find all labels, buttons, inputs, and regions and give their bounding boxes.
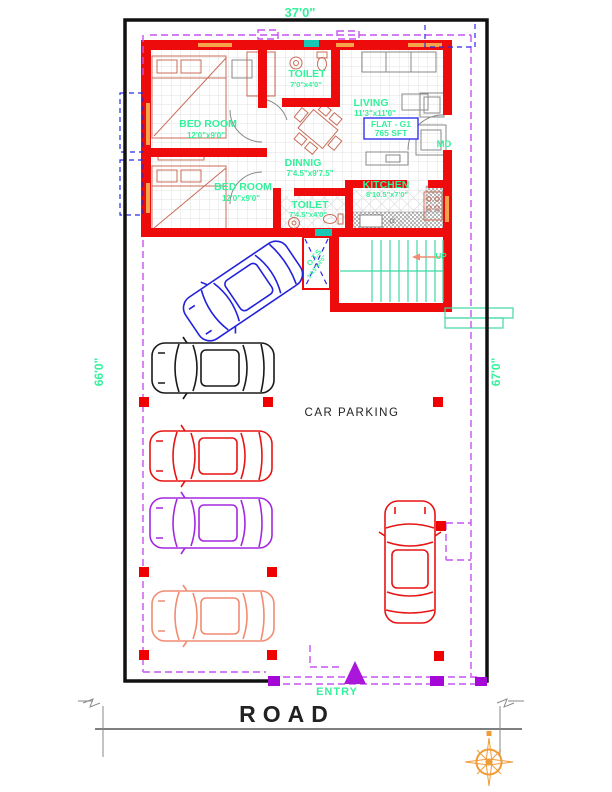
wall-segment [141,148,267,157]
wall-segment [330,237,339,312]
column-marker [267,650,277,660]
wall-segment [282,98,340,107]
column-marker [139,650,149,660]
dim-right: 67'0" [489,358,503,387]
column-marker [263,397,273,407]
wall-segment [443,237,452,312]
car-black [152,337,274,399]
floor-plan-canvas: 37'0" 66'0" 67'0" BED ROOM 12'0"x9'0" BE… [0,0,612,792]
bedroom1-size: 12'0"x9'0" [187,131,225,140]
floor-plan-page: 37'0" 66'0" 67'0" BED ROOM 12'0"x9'0" BE… [0,0,612,792]
sink [360,215,382,227]
wall-segment [428,180,452,188]
car-red [150,425,272,487]
car-salmon [152,585,274,647]
toilet1-size: 7'0"x4'0" [290,80,322,89]
wall-segment [294,188,350,196]
car-red-vertical [379,501,441,623]
wall-segment [330,303,452,312]
flat-tag: FLAT - G1 765 SFT [364,118,418,139]
wall-segment [141,40,452,50]
boundary-peg [475,677,487,686]
wall-segment [331,40,340,107]
dim-top: 37'0" [285,5,316,20]
wall-segment [345,180,353,237]
dim-left: 66'0" [92,358,106,387]
bedroom1-label: BED ROOM [179,118,237,130]
stair-up-label: UP [435,252,447,261]
living-size: 11'3"x11'0" [354,109,396,118]
flat-area: 765 SFT [375,128,408,138]
dining-size: 7'4.5"x9'7.5" [287,169,334,178]
car-parking-label: CAR PARKING [305,407,400,419]
wall-segment [443,150,452,237]
column-marker [139,567,149,577]
kitchen-size: 8'10.5"x7'0" [366,190,408,199]
toilet2-size: 7'4.5"x4'0" [289,210,327,219]
column-marker [433,397,443,407]
column-marker [434,651,444,661]
stair-arrowhead [412,254,420,261]
boundary-peg [268,676,280,686]
column-marker [139,397,149,407]
car-blue [175,231,311,351]
car-purple [150,492,272,554]
toilet1-vent [304,40,319,47]
toilet2-vent [315,229,332,236]
wall-segment [273,188,281,237]
road-break-left [78,699,103,757]
bedroom2-label: BED ROOM [214,181,272,193]
boundary-peg [430,676,444,686]
toilet1-label: TOILET [288,68,326,80]
entry-label: ENTRY [316,686,358,698]
entry-step [445,318,503,328]
wall-segment [258,40,267,108]
compass-rose-icon [465,731,513,786]
road-break-right [497,699,524,757]
column-marker [267,567,277,577]
cars [150,231,441,647]
main-door-label: MD [437,139,452,150]
entry-triangle-icon [344,661,366,684]
column-markers [139,397,446,661]
entry-step [445,308,513,318]
dining-label: DINNIG [285,157,322,169]
wall-segment [141,228,452,237]
bedroom2-size: 12'0"x9'0" [222,194,260,203]
wall-segment [443,40,452,115]
column-marker [436,521,446,531]
living-label: LIVING [353,97,388,109]
road-label: ROAD [239,701,335,727]
